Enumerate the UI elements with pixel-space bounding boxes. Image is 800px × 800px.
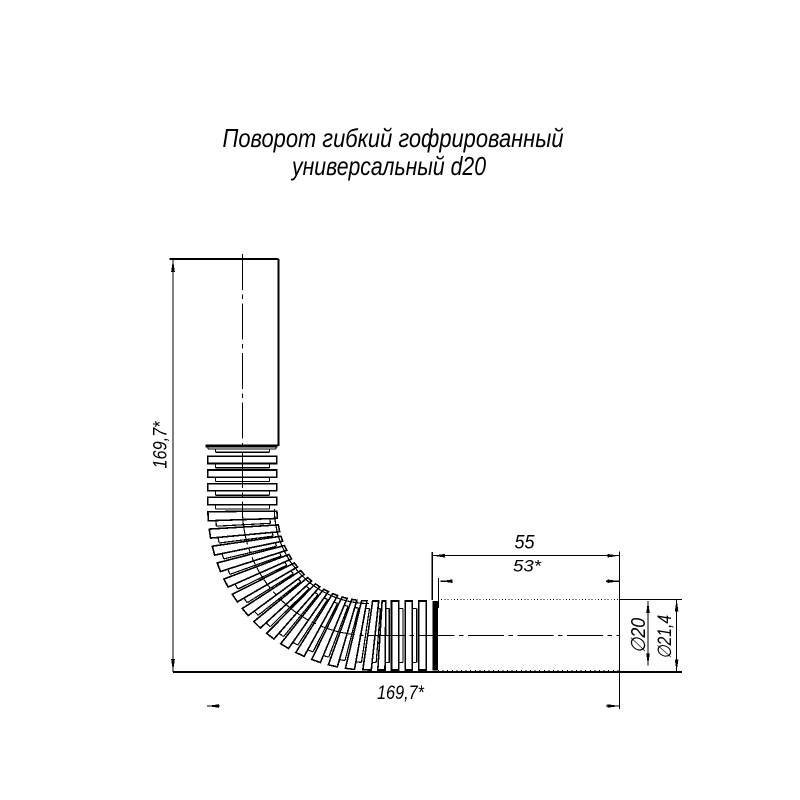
svg-text:Поворот гибкий гофрированный: Поворот гибкий гофрированный [223, 123, 564, 153]
svg-text:∅21,4: ∅21,4 [655, 615, 676, 659]
svg-text:169,7*: 169,7* [151, 421, 172, 469]
svg-text:53*: 53* [513, 557, 543, 576]
svg-text:55: 55 [515, 533, 535, 554]
svg-text:169,7*: 169,7* [377, 683, 425, 704]
svg-text:универсальный d20: универсальный d20 [290, 151, 486, 181]
svg-text:∅20: ∅20 [628, 618, 650, 654]
